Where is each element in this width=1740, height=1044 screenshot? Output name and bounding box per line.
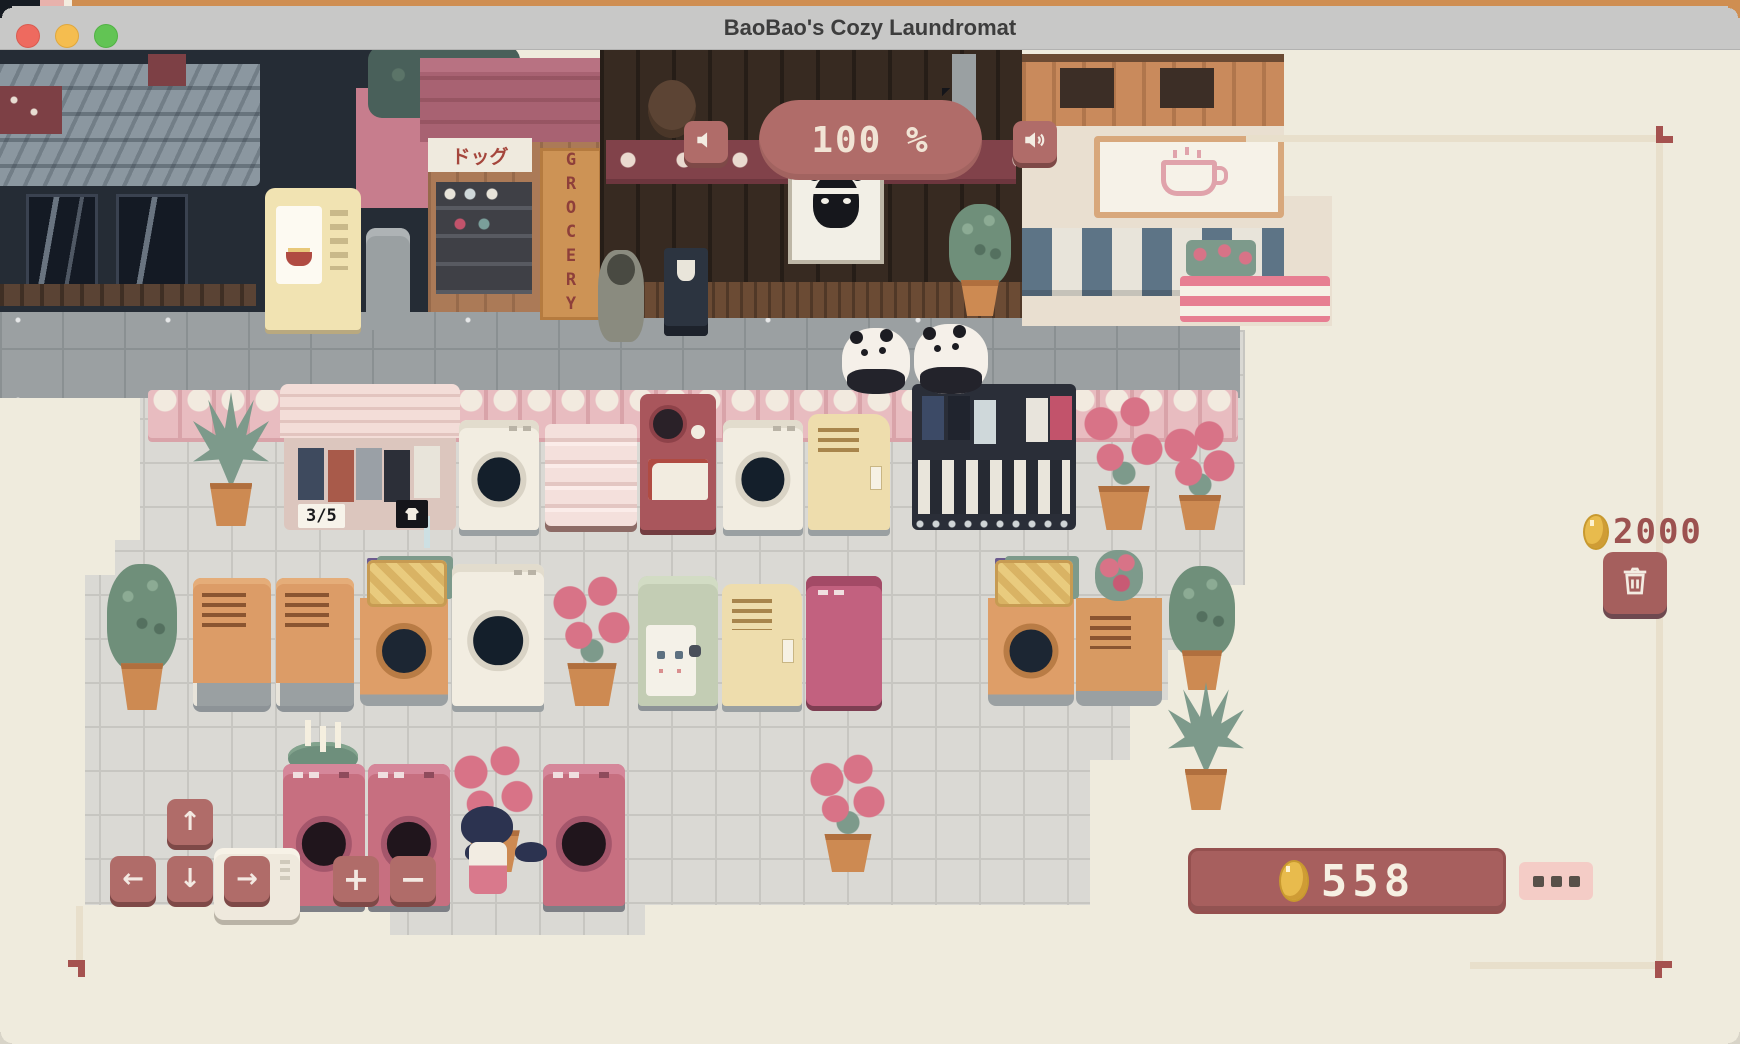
corner-bracket-top-right <box>1656 136 1673 143</box>
agave-plant[interactable] <box>193 392 269 526</box>
sound-on-button[interactable] <box>1013 121 1057 163</box>
flower-planter[interactable] <box>1078 392 1170 530</box>
cream-washer[interactable] <box>452 564 544 706</box>
zoom-button[interactable] <box>94 24 118 48</box>
clothes-shop[interactable]: 3/5 <box>284 384 456 530</box>
titlebar[interactable]: BaoBao's Cozy Laundromat <box>0 6 1740 50</box>
washer-with-basket[interactable] <box>988 560 1074 706</box>
player-character <box>455 806 521 906</box>
red-vending-machine[interactable] <box>640 394 716 530</box>
close-button[interactable] <box>16 24 40 48</box>
speaker-muted-icon <box>693 127 719 158</box>
drinks-machine[interactable] <box>638 576 718 706</box>
changing-room[interactable] <box>912 384 1076 530</box>
wallet-balance-value: 558 <box>1321 856 1415 907</box>
orange-dryer[interactable] <box>276 578 354 706</box>
window-title: BaoBao's Cozy Laundromat <box>0 6 1740 50</box>
music-mute-button[interactable] <box>684 121 728 163</box>
window-corner <box>0 6 12 18</box>
corner-bracket-bottom-right <box>1655 961 1662 978</box>
orange-cabinet-flowers[interactable] <box>1076 556 1162 706</box>
more-button[interactable] <box>1519 862 1593 900</box>
wallet-display: 558 <box>1188 848 1506 914</box>
menu-signboard <box>664 248 708 336</box>
trash-icon <box>1617 563 1653 604</box>
move-up-button[interactable]: ↑ <box>167 799 213 845</box>
candle-sticks <box>305 720 311 746</box>
region-line-left <box>76 906 83 960</box>
minimize-button[interactable] <box>55 24 79 48</box>
potted-plant[interactable] <box>946 204 1014 316</box>
pink-washer[interactable] <box>543 764 625 906</box>
pink-machine[interactable] <box>806 576 882 706</box>
pink-shelf[interactable] <box>545 424 637 526</box>
shop-stock-label: 3/5 <box>298 504 345 528</box>
cream-cabinet[interactable] <box>808 414 890 530</box>
region-line-bottom <box>1470 962 1656 969</box>
region-line-top <box>1246 135 1656 142</box>
coin-balance-display: 2000 <box>1583 512 1703 552</box>
window-corner <box>1728 6 1740 18</box>
washer[interactable] <box>459 420 539 530</box>
coin-icon <box>1583 514 1609 550</box>
corner-bracket-bottom-left <box>78 960 85 977</box>
leafy-plant[interactable] <box>1166 566 1238 690</box>
move-right-button[interactable]: → <box>224 856 270 902</box>
zoom-in-button[interactable]: + <box>333 856 379 902</box>
move-down-button[interactable]: ↓ <box>167 856 213 902</box>
agave-plant[interactable] <box>1168 682 1244 810</box>
cream-locker[interactable] <box>722 584 802 706</box>
ellipsis-icon <box>1533 876 1544 887</box>
flower-planter[interactable] <box>806 752 890 872</box>
shopper-npc <box>598 250 644 342</box>
speaker-on-icon <box>1022 127 1048 158</box>
shirt-tag-icon <box>396 500 428 528</box>
washer[interactable] <box>723 420 803 530</box>
flower-planter[interactable] <box>1162 420 1238 530</box>
ellipsis-icon <box>1569 876 1580 887</box>
flower-planter[interactable] <box>548 572 636 706</box>
screen: { "window": { "title": "BaoBao's Cozy La… <box>0 0 1740 1044</box>
washer-with-basket[interactable] <box>360 560 448 706</box>
window-corner <box>0 1032 12 1044</box>
leafy-plant[interactable] <box>104 564 180 710</box>
panda-customer <box>842 328 910 394</box>
move-left-button[interactable]: ← <box>110 856 156 902</box>
trash-button[interactable] <box>1603 552 1667 614</box>
coin-icon <box>1279 860 1309 902</box>
window-corner <box>1728 1032 1740 1044</box>
orange-dryer[interactable] <box>193 578 271 706</box>
zoom-out-button[interactable]: − <box>390 856 436 902</box>
ellipsis-icon <box>1551 876 1562 887</box>
panda-customer <box>914 324 988 394</box>
volume-display: 100 % <box>759 100 982 180</box>
coin-balance-value: 2000 <box>1613 512 1703 552</box>
